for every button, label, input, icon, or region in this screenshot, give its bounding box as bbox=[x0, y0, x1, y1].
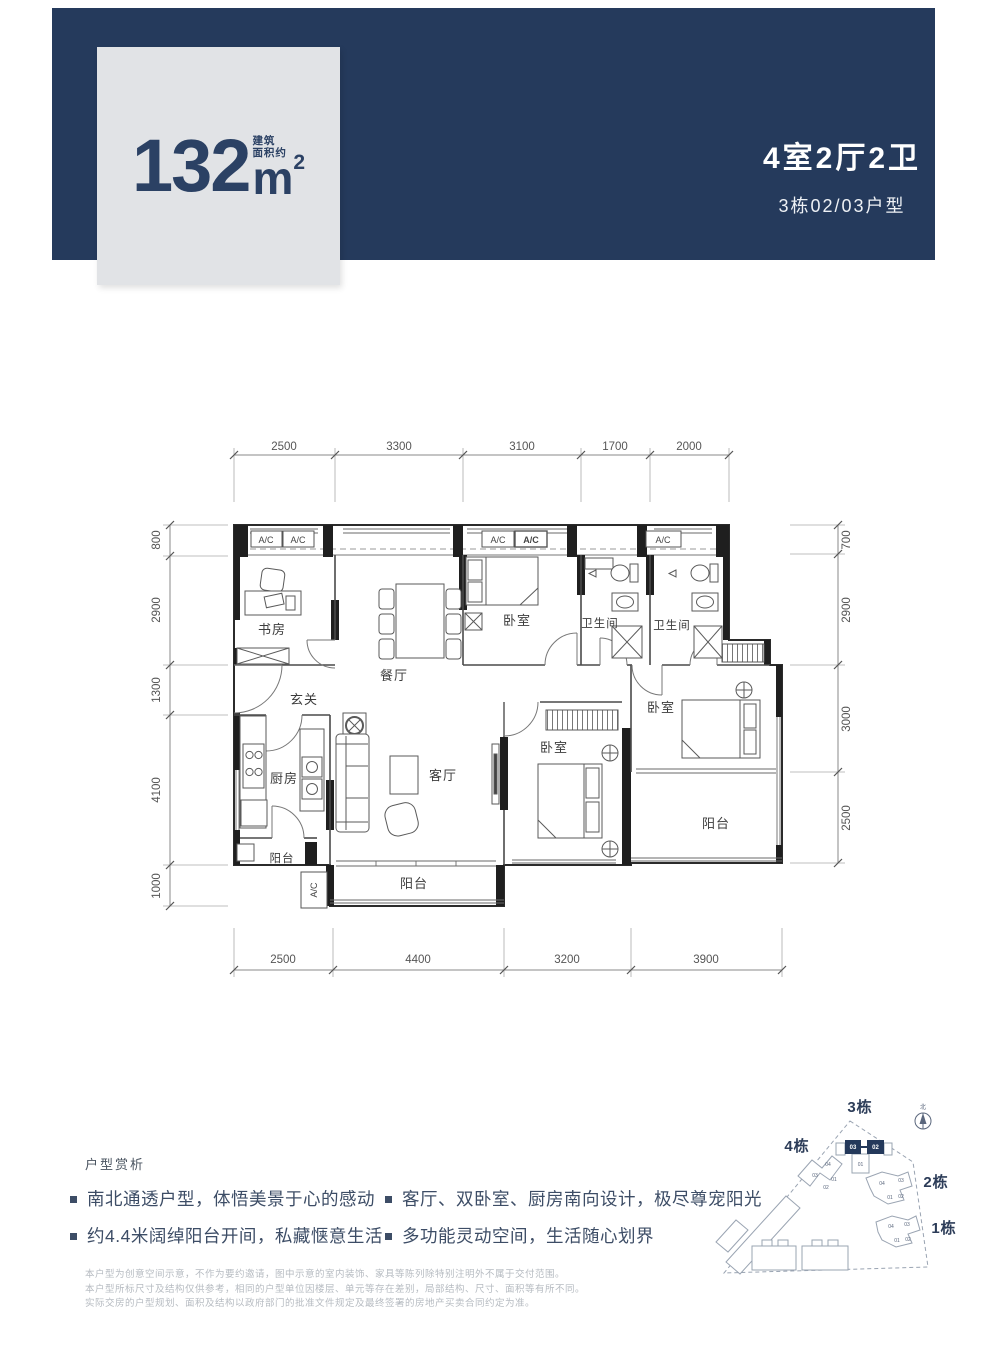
dim-left-4: 4100 bbox=[151, 777, 163, 803]
dimension-chain-left bbox=[163, 521, 228, 910]
room-label-bath-a: 卫生间 bbox=[581, 616, 619, 630]
b1-unit-02: 02 bbox=[905, 1237, 911, 1243]
bed-middle bbox=[538, 764, 602, 838]
room-label-kitchen: 厨房 bbox=[270, 771, 298, 786]
analysis-heading: 户型赏析 bbox=[85, 1154, 145, 1173]
kitchen-stove bbox=[243, 744, 264, 788]
room-label-dining: 餐厅 bbox=[380, 668, 408, 683]
b4-unit-02: 02 bbox=[823, 1185, 829, 1191]
unit-label-02: 02 bbox=[872, 1145, 879, 1151]
wardrobe-east bbox=[722, 644, 764, 662]
building-label-4: 4栋 bbox=[784, 1137, 809, 1155]
dim-right-3: 3000 bbox=[841, 706, 853, 732]
bath-a-toilet bbox=[611, 565, 629, 581]
bath-b-toilet bbox=[691, 565, 709, 581]
dim-left-1: 800 bbox=[151, 530, 163, 549]
b2-unit-04: 04 bbox=[879, 1181, 885, 1187]
compass-icon: 北 bbox=[915, 1103, 931, 1129]
analysis-bullet-3: 客厅、双卧室、厨房南向设计，极尽尊宠阳光 bbox=[385, 1186, 762, 1211]
bedroom-north-fixture bbox=[465, 613, 482, 630]
dimension-labels-left: 800 2900 1300 4100 1000 bbox=[151, 530, 163, 898]
disclaimer: 本户型为创意空间示意，不作为要约邀请，图中示意的室内装饰、家具等陈列除特别注明外… bbox=[85, 1268, 725, 1312]
b1-unit-01: 01 bbox=[894, 1238, 900, 1244]
building-label-1: 1栋 bbox=[931, 1219, 956, 1237]
floor-plan-svg: 2500 3300 3100 1700 2000 2500 4400 3200 … bbox=[0, 0, 1000, 1356]
analysis-bullet-4: 多功能灵动空间，生活随心划界 bbox=[385, 1223, 654, 1248]
b4-unit-04: 04 bbox=[825, 1162, 831, 1168]
ac-label-1: A/C bbox=[258, 535, 274, 545]
study-chair bbox=[260, 568, 286, 593]
room-label-bedroom-middle: 卧室 bbox=[540, 740, 568, 755]
dim-right-4: 2500 bbox=[841, 805, 853, 831]
dimension-chain-bottom bbox=[230, 928, 786, 977]
study-cabinet bbox=[237, 648, 289, 664]
dim-bottom-2: 4400 bbox=[405, 954, 431, 966]
ac-label-3: A/C bbox=[490, 535, 506, 545]
dim-top-1: 2500 bbox=[271, 441, 297, 453]
b4-unit-03: 03 bbox=[812, 1173, 818, 1179]
unit-label-03: 03 bbox=[850, 1145, 857, 1151]
bullet-square-icon bbox=[70, 1196, 77, 1203]
bath-b-shower bbox=[694, 626, 722, 658]
building-label-3: 3栋 bbox=[847, 1098, 872, 1116]
tv-screen bbox=[494, 754, 497, 794]
fixture-east bbox=[736, 682, 752, 698]
fixture-middle-1 bbox=[602, 745, 618, 761]
dimension-labels-bottom: 2500 4400 3200 3900 bbox=[270, 954, 719, 966]
ac-label-2: A/C bbox=[290, 535, 306, 545]
bed-east bbox=[682, 700, 760, 758]
bullet-square-icon bbox=[70, 1233, 77, 1240]
unit-label-01: 01 bbox=[858, 1162, 864, 1168]
ac-label-6: A/C bbox=[309, 882, 319, 898]
dimension-labels-right: 700 2900 3000 2500 bbox=[841, 530, 853, 830]
bath-a-shelf bbox=[585, 558, 613, 569]
brochure-page: 132 建筑面积约 m 2 4室2厅2卫 3栋02/03户型 bbox=[0, 0, 1000, 1356]
dim-top-3: 3100 bbox=[509, 441, 535, 453]
dim-top-4: 1700 bbox=[602, 441, 628, 453]
living-coffee-table bbox=[390, 756, 418, 794]
dimension-chain-right bbox=[790, 521, 845, 867]
dimension-chain-top bbox=[230, 448, 733, 502]
north-label: 北 bbox=[920, 1103, 926, 1111]
b1-unit-04: 04 bbox=[888, 1224, 894, 1230]
b4-unit-01: 01 bbox=[831, 1177, 837, 1183]
b1-unit-03: 03 bbox=[904, 1222, 910, 1228]
living-sofa bbox=[336, 734, 369, 832]
wardrobe-middle bbox=[546, 710, 618, 730]
dim-bottom-4: 3900 bbox=[693, 954, 719, 966]
dim-right-1: 700 bbox=[841, 530, 853, 549]
room-label-bedroom-north: 卧室 bbox=[503, 613, 531, 628]
building-label-2: 2栋 bbox=[923, 1173, 948, 1191]
kitchen-appliance bbox=[241, 800, 267, 826]
analysis-bullet-2: 约4.4米阔绰阳台开间，私藏惬意生活 bbox=[70, 1223, 383, 1248]
bullet-square-icon bbox=[385, 1233, 392, 1240]
study-monitor bbox=[286, 596, 295, 610]
disclaimer-line-2: 本户型所标尺寸及结构仅供参考，相同的户型单位因楼层、单元等存在差别，局部结构、尺… bbox=[85, 1283, 725, 1298]
room-label-balcony-east: 阳台 bbox=[702, 816, 730, 831]
analysis-bullet-1: 南北通透户型，体悟美景于心的感动 bbox=[70, 1186, 375, 1211]
room-label-living: 客厅 bbox=[429, 768, 457, 783]
room-label-bath-b: 卫生间 bbox=[653, 618, 691, 632]
fixture-middle-2 bbox=[602, 841, 618, 857]
dim-left-2: 2900 bbox=[151, 597, 163, 623]
room-label-study: 书房 bbox=[258, 622, 286, 637]
bullet-square-icon bbox=[385, 1196, 392, 1203]
dim-top-5: 2000 bbox=[676, 441, 702, 453]
b2-unit-01: 01 bbox=[887, 1195, 893, 1201]
disclaimer-line-3: 实际交房的户型规划、面积及结构以政府部门的批准文件规定及最终签署的房地产买卖合同… bbox=[85, 1297, 725, 1312]
b2-unit-02: 02 bbox=[898, 1194, 904, 1200]
room-label-entry: 玄关 bbox=[290, 692, 318, 707]
bath-a-shower bbox=[612, 626, 642, 658]
dim-bottom-3: 3200 bbox=[554, 954, 580, 966]
dining-table bbox=[396, 584, 444, 658]
dimension-labels-top: 2500 3300 3100 1700 2000 bbox=[271, 441, 702, 453]
dim-top-2: 3300 bbox=[386, 441, 412, 453]
ac-label-5: A/C bbox=[655, 535, 671, 545]
b2-unit-03: 03 bbox=[898, 1178, 904, 1184]
dim-left-3: 1300 bbox=[151, 677, 163, 703]
dim-bottom-1: 2500 bbox=[270, 954, 296, 966]
disclaimer-line-1: 本户型为创意空间示意，不作为要约邀请，图中示意的室内装饰、家具等陈列除特别注明外… bbox=[85, 1268, 725, 1283]
balcony-cabinet bbox=[237, 844, 254, 861]
bed-north bbox=[466, 557, 538, 605]
dim-right-2: 2900 bbox=[841, 597, 853, 623]
room-label-balcony-kitchen: 阳台 bbox=[270, 851, 295, 865]
dim-left-5: 1000 bbox=[151, 873, 163, 899]
room-label-balcony-south: 阳台 bbox=[400, 876, 428, 891]
room-label-bedroom-east: 卧室 bbox=[647, 700, 675, 715]
ac-label-4: A/C bbox=[523, 535, 539, 545]
